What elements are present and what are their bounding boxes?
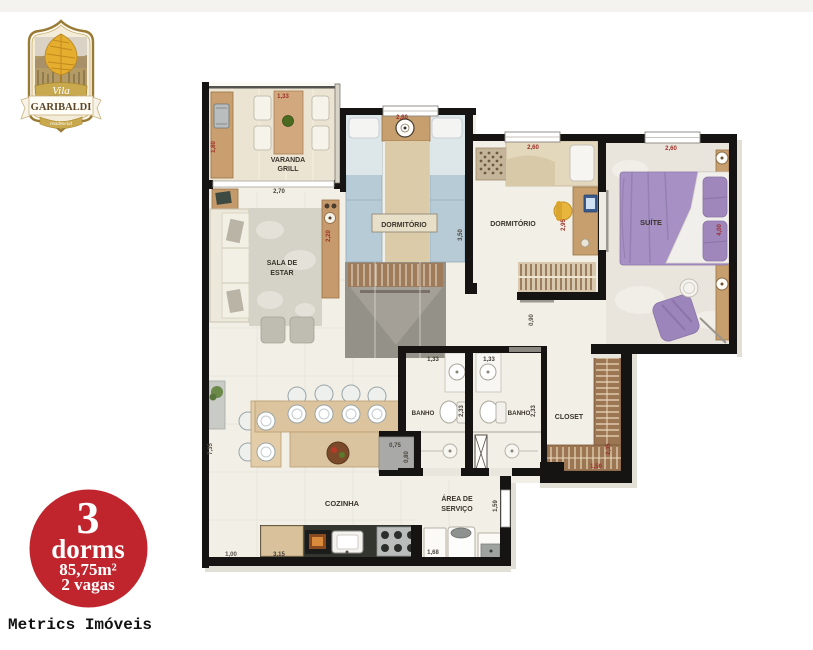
svg-text:GRILL: GRILL bbox=[278, 166, 300, 173]
svg-text:2,33: 2,33 bbox=[459, 405, 465, 417]
svg-text:2,60: 2,60 bbox=[396, 115, 408, 121]
svg-text:BANHO: BANHO bbox=[412, 410, 435, 417]
svg-text:0,90: 0,90 bbox=[529, 314, 535, 326]
svg-text:SERVIÇO: SERVIÇO bbox=[441, 506, 473, 513]
svg-text:7,35: 7,35 bbox=[208, 443, 214, 455]
svg-text:2 vagas: 2 vagas bbox=[61, 575, 115, 594]
svg-text:ÁREA DE: ÁREA DE bbox=[441, 494, 473, 503]
svg-text:2,20: 2,20 bbox=[326, 230, 332, 242]
svg-text:1,50: 1,50 bbox=[590, 464, 602, 470]
svg-text:Metrics Imóveis: Metrics Imóveis bbox=[8, 616, 152, 634]
svg-text:1,33: 1,33 bbox=[483, 357, 495, 363]
svg-text:2,33: 2,33 bbox=[531, 405, 537, 417]
svg-text:VARANDA: VARANDA bbox=[271, 157, 305, 164]
svg-text:1,80: 1,80 bbox=[211, 141, 217, 153]
svg-text:3,15: 3,15 bbox=[273, 552, 285, 558]
svg-text:SUÍTE: SUÍTE bbox=[640, 218, 662, 227]
svg-text:DORMITÓRIO: DORMITÓRIO bbox=[490, 219, 536, 228]
svg-text:2,95: 2,95 bbox=[561, 219, 567, 231]
svg-text:1,59: 1,59 bbox=[493, 500, 499, 512]
svg-text:GARIBALDI: GARIBALDI bbox=[31, 102, 92, 113]
svg-text:4,00: 4,00 bbox=[717, 224, 723, 236]
svg-text:0,75: 0,75 bbox=[389, 443, 401, 449]
svg-text:1,33: 1,33 bbox=[277, 94, 289, 100]
svg-text:BANHO: BANHO bbox=[508, 410, 531, 417]
svg-text:1,68: 1,68 bbox=[427, 550, 439, 556]
svg-text:COZINHA: COZINHA bbox=[325, 499, 360, 508]
svg-text:CLOSET: CLOSET bbox=[555, 414, 584, 421]
svg-text:1,00: 1,00 bbox=[225, 552, 237, 558]
svg-text:2,70: 2,70 bbox=[273, 189, 285, 195]
svg-text:2,60: 2,60 bbox=[665, 146, 677, 152]
svg-text:2,60: 2,60 bbox=[527, 145, 539, 151]
svg-text:1,33: 1,33 bbox=[427, 357, 439, 363]
svg-text:DORMITÓRIO: DORMITÓRIO bbox=[381, 220, 427, 229]
svg-text:residencial: residencial bbox=[50, 122, 73, 127]
svg-text:0,80: 0,80 bbox=[404, 451, 410, 463]
svg-text:3,50: 3,50 bbox=[458, 229, 464, 241]
svg-text:SALA DE: SALA DE bbox=[267, 260, 298, 267]
svg-text:Vila: Vila bbox=[52, 85, 70, 97]
svg-text:2,35: 2,35 bbox=[606, 443, 612, 455]
svg-text:ESTAR: ESTAR bbox=[270, 270, 293, 277]
